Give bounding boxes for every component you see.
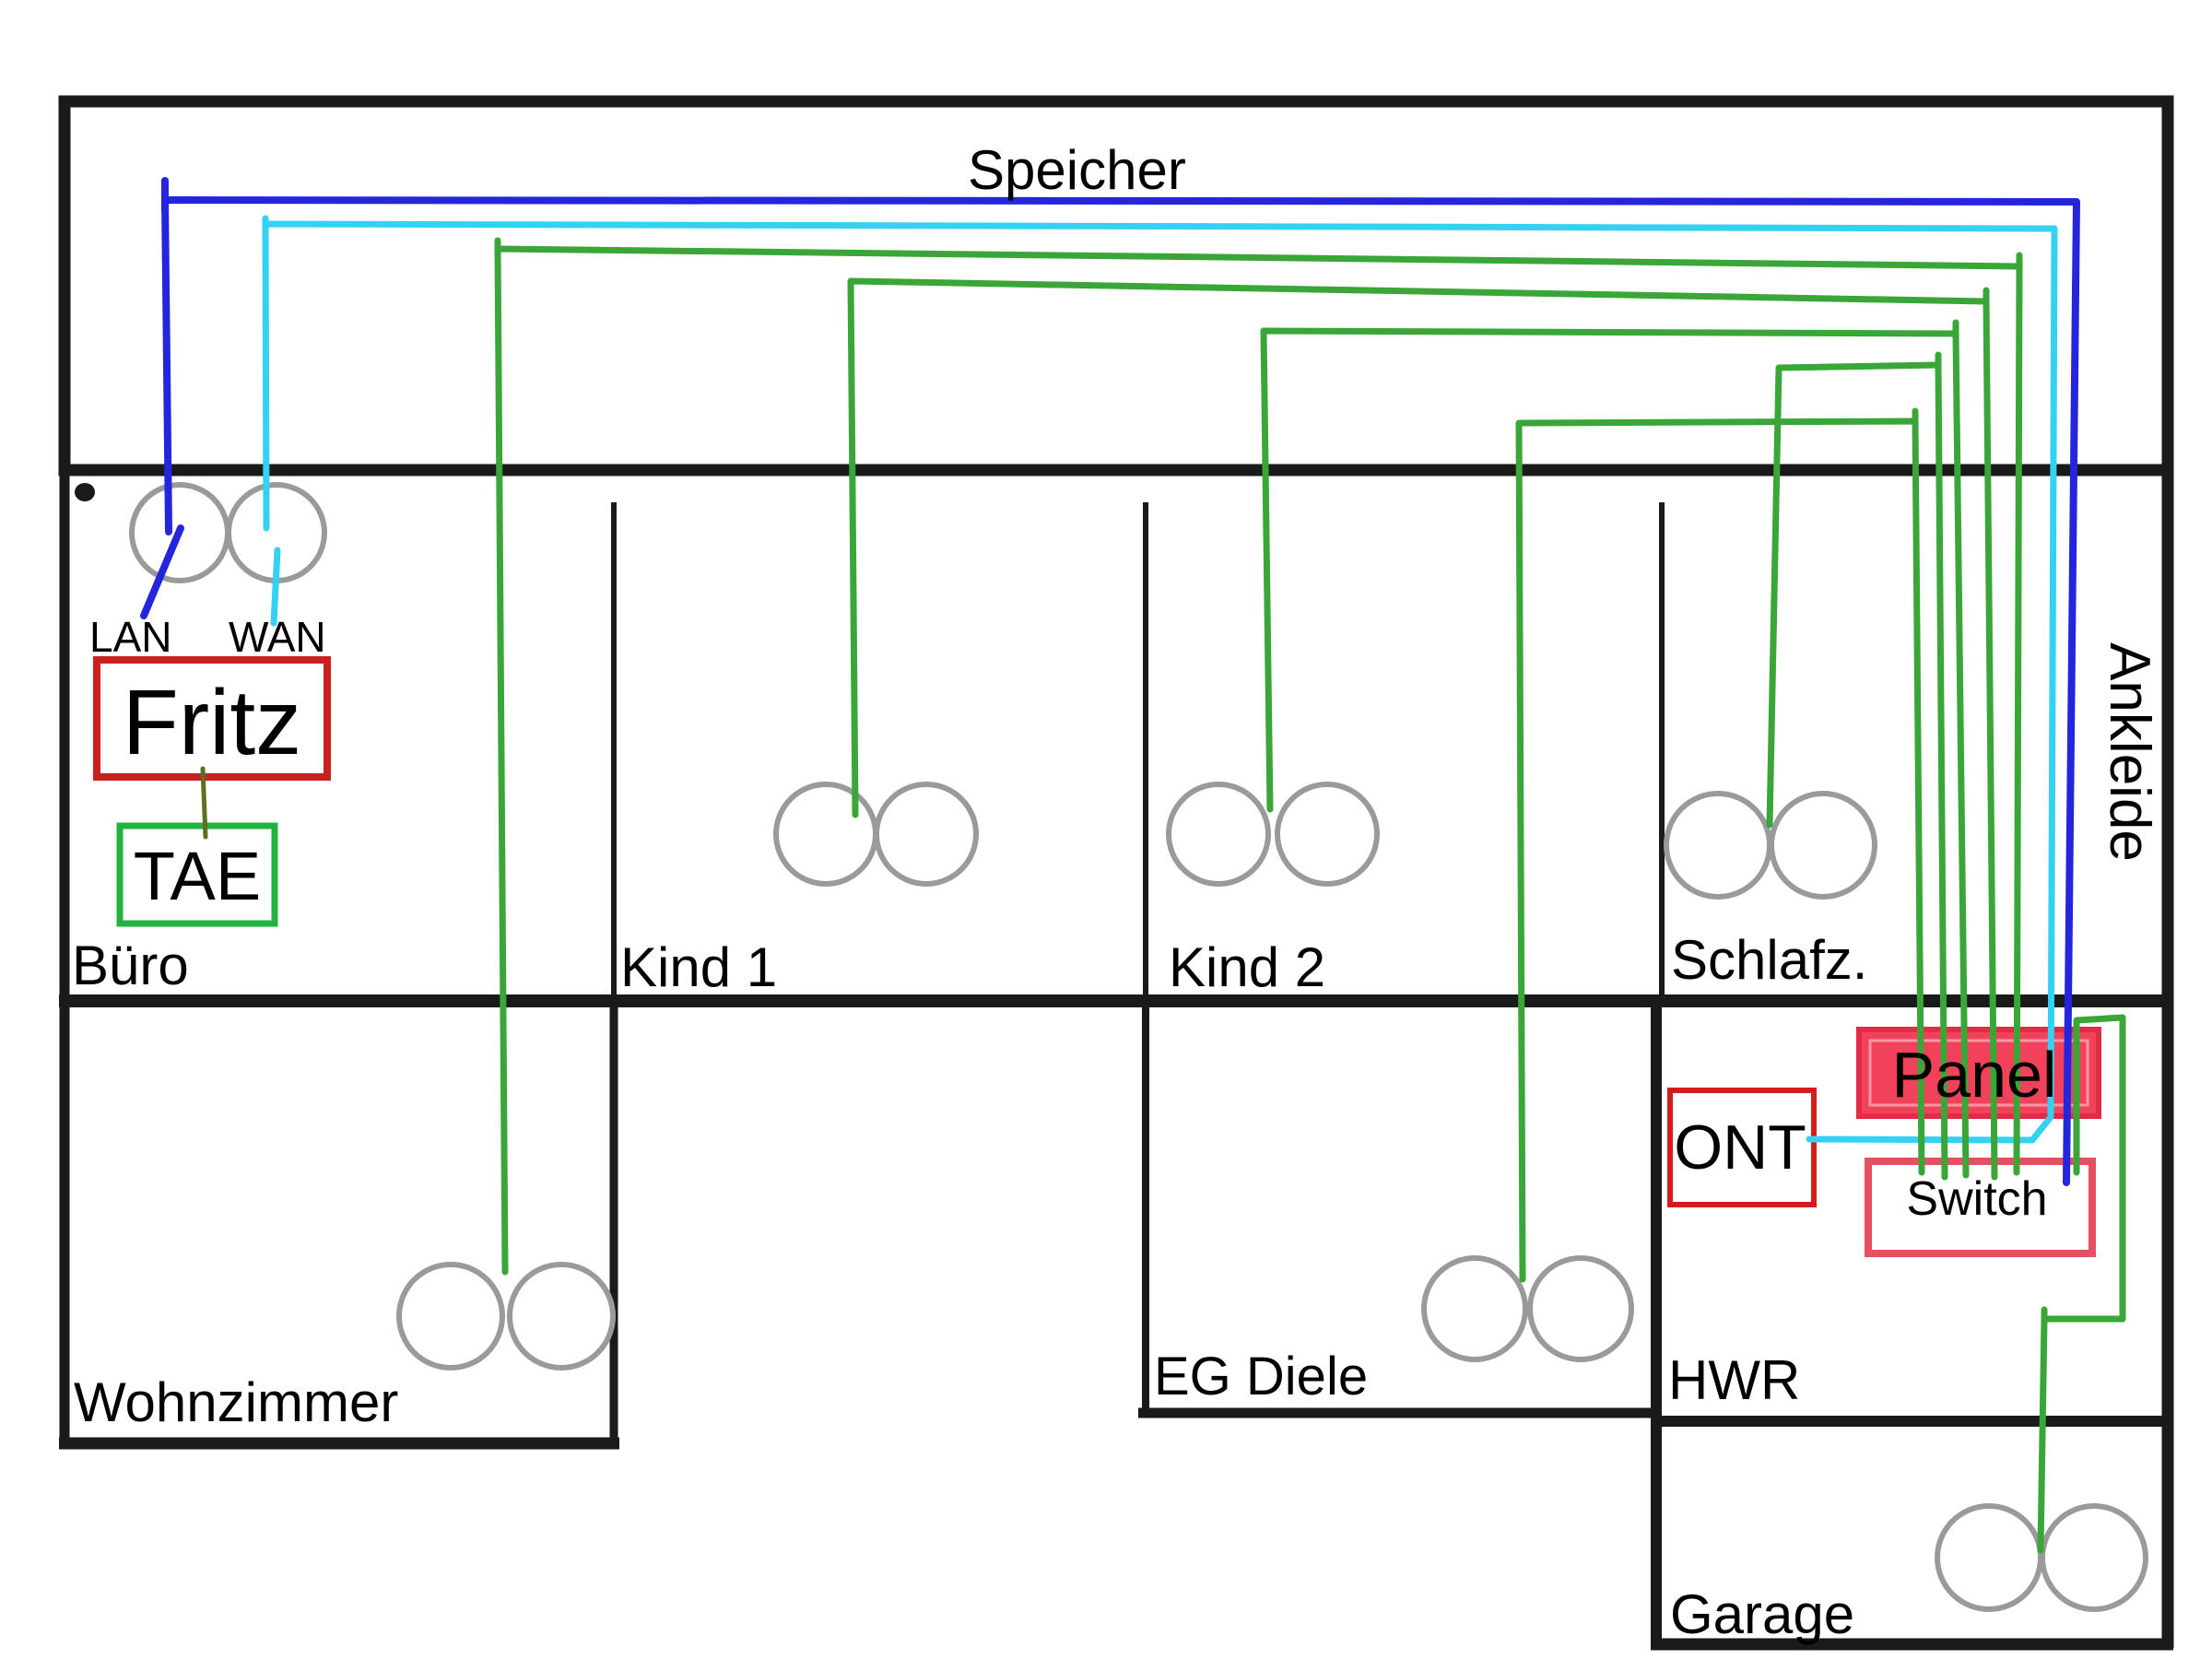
device-label-switch: Switch xyxy=(1906,1172,2047,1226)
floorplan-network-diagram: Speicher Büro Kind 1 Kind 2 Schlafz. Woh… xyxy=(0,0,2212,1659)
room-label-schlafz: Schlafz. xyxy=(1671,929,1867,991)
socket-circle xyxy=(1277,784,1377,884)
socket-pair-wohnzimmer xyxy=(399,1265,613,1368)
socket-circle xyxy=(1530,1258,1631,1359)
socket-pair-kind1 xyxy=(776,784,976,884)
room-label-ankleide: Ankleide xyxy=(2098,642,2161,862)
room-label-kind2: Kind 2 xyxy=(1169,936,1325,998)
port-label-lan: LAN xyxy=(89,613,171,661)
cable-phone-fritz-to-tae xyxy=(203,769,206,837)
socket-circle xyxy=(1424,1258,1525,1359)
port-label-wan: WAN xyxy=(229,613,326,661)
ink-dot-artifact xyxy=(75,483,95,501)
socket-circle xyxy=(1771,794,1875,897)
cable-green-kind1 xyxy=(851,281,1994,1177)
room-label-speicher: Speicher xyxy=(968,139,1186,201)
device-label-panel: Panel xyxy=(1891,1039,2056,1111)
socket-circle xyxy=(877,784,976,884)
socket-circle xyxy=(510,1265,613,1368)
socket-circle xyxy=(776,784,876,884)
device-label-fritz: Fritz xyxy=(123,671,301,774)
cable-lan-fritz-to-switch xyxy=(165,200,2077,1182)
socket-circle xyxy=(399,1265,502,1368)
diagram-canvas: Speicher Büro Kind 1 Kind 2 Schlafz. Woh… xyxy=(0,0,2212,1659)
room-label-kind1: Kind 1 xyxy=(620,936,777,998)
room-label-garage: Garage xyxy=(1670,1583,1854,1645)
room-label-wohnzimmer: Wohnzimmer xyxy=(74,1371,398,1433)
room-label-hwr: HWR xyxy=(1668,1349,1800,1411)
socket-circle xyxy=(2042,1506,2146,1609)
socket-pair-eg-diele xyxy=(1424,1258,1631,1359)
room-label-buero: Büro xyxy=(72,935,189,996)
device-label-ont: ONT xyxy=(1674,1112,1806,1182)
room-label-eg-diele: EG Diele xyxy=(1154,1347,1368,1406)
socket-circle xyxy=(1666,794,1770,897)
device-label-tae: TAE xyxy=(134,838,261,914)
socket-circle xyxy=(1937,1506,2041,1609)
socket-circle xyxy=(1169,784,1268,884)
